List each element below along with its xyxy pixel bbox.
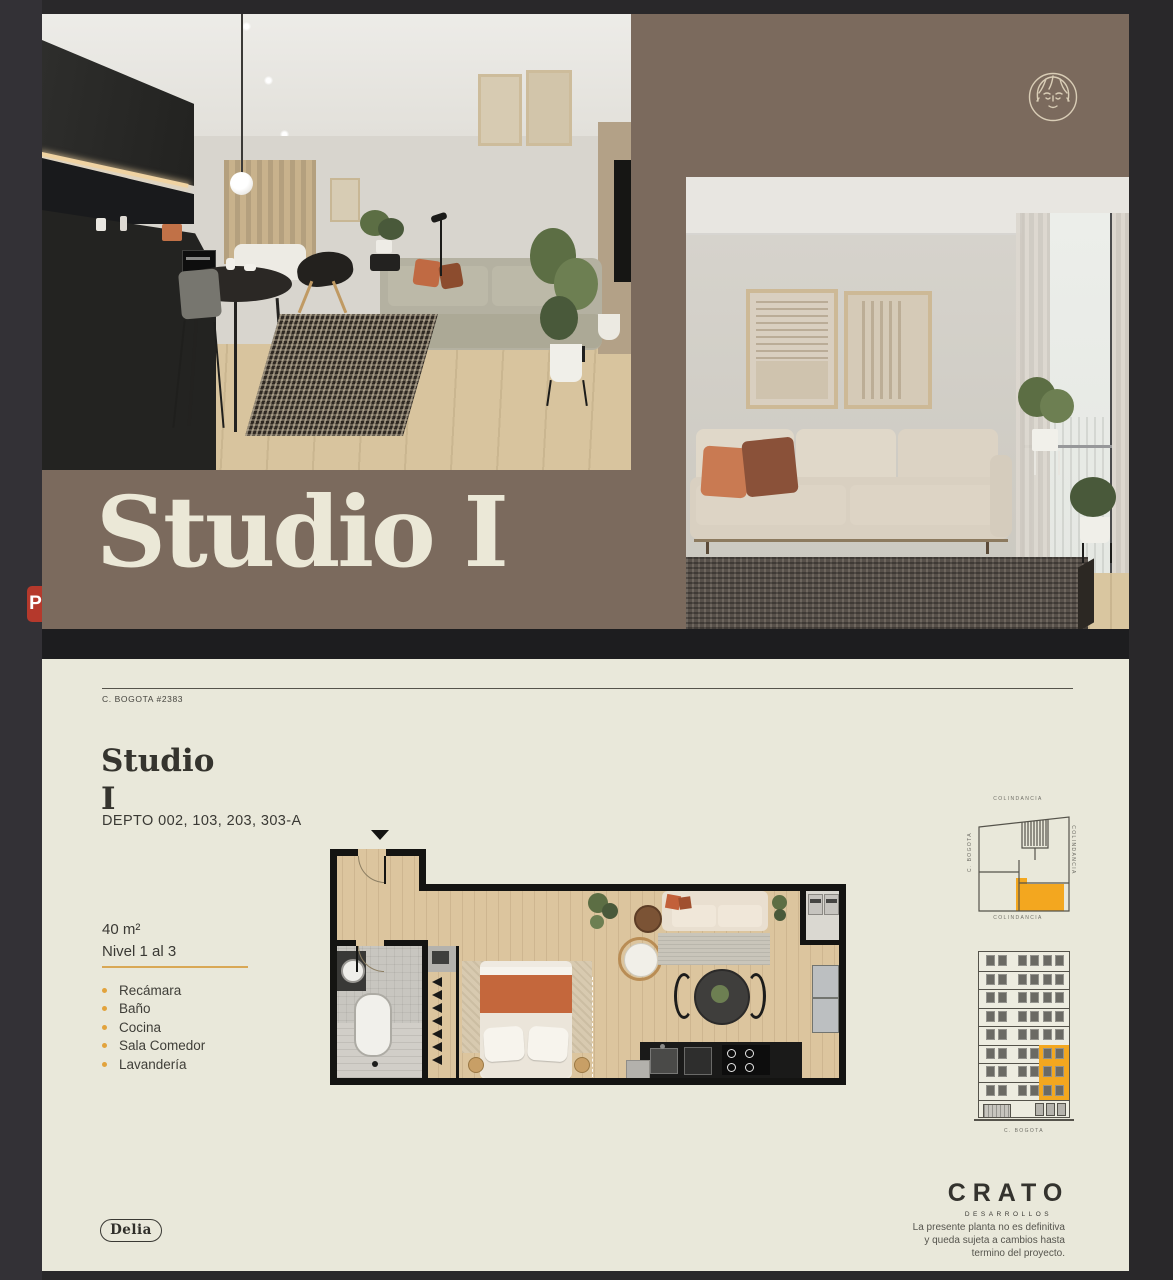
oven-handle	[186, 257, 210, 260]
counter-prop-box	[162, 224, 182, 241]
kitchen-sink-plan	[650, 1048, 678, 1074]
north-triangle-marker	[371, 830, 389, 840]
wall	[800, 940, 846, 945]
bath-door-leaf	[356, 946, 358, 972]
sofa-arm-right	[990, 455, 1012, 537]
olive-tree-foliage	[540, 296, 578, 340]
elevation-window	[1018, 1066, 1027, 1077]
elevation-window	[1043, 1048, 1052, 1059]
elevation-window	[1030, 1085, 1039, 1096]
wall-art-frame	[746, 289, 838, 409]
frame-art-lines	[756, 301, 828, 359]
elevation-window	[1018, 1029, 1027, 1040]
elevation-window	[1055, 992, 1064, 1003]
plan-plant	[590, 915, 604, 929]
sheer-curtain	[1112, 213, 1129, 617]
viewer-left-gutter	[0, 0, 42, 1280]
stove-burner	[745, 1063, 754, 1072]
plan-plant	[772, 895, 787, 910]
area-rug	[686, 557, 1088, 629]
elevation-window	[998, 992, 1007, 1003]
sofa-leg	[986, 542, 989, 554]
floor-lamp-pole	[440, 218, 442, 276]
feature-label: Recámara	[119, 983, 181, 998]
elevation-window	[998, 1066, 1007, 1077]
elevation-floor	[979, 971, 1069, 991]
entry-door-leaf	[384, 856, 386, 884]
bullet-dot	[102, 1043, 107, 1048]
level-label: Nivel 1 al 3	[102, 943, 176, 960]
feature-label: Baño	[119, 1001, 151, 1016]
dining-chair-plan	[674, 973, 694, 1019]
wall-art-frame	[526, 70, 572, 146]
closet-hanger-icon	[432, 977, 442, 987]
pendant-cord	[241, 14, 243, 174]
elevation-building	[978, 951, 1070, 1118]
header-rule	[102, 688, 1073, 689]
elevation-window	[1030, 992, 1039, 1003]
elevation-window	[1018, 974, 1027, 985]
elevation-window	[1043, 974, 1052, 985]
kitchen-faucet	[660, 1044, 665, 1049]
elevation-window	[986, 992, 995, 1003]
elevation-window	[1030, 1011, 1039, 1022]
counter-prop-candle	[120, 216, 127, 231]
nightstand	[574, 1057, 590, 1073]
sofa-pillow-orange	[412, 258, 441, 287]
elevation-window	[1043, 1029, 1052, 1040]
bed-pillow	[527, 1026, 569, 1063]
bathtub	[354, 993, 392, 1057]
table-leg	[234, 302, 237, 432]
feature-item: Sala Comedor	[102, 1037, 205, 1056]
armchair-seat	[624, 943, 658, 977]
siteplan-label-right: COLINDANCIA	[1070, 811, 1076, 889]
garage-door	[983, 1104, 1011, 1118]
wall-art-frame-small	[330, 178, 360, 222]
bullet-dot	[102, 1062, 107, 1067]
elevation-window	[1018, 992, 1027, 1003]
elevation-floor	[979, 1045, 1069, 1065]
elevation-window	[998, 974, 1007, 985]
elevation-window	[1018, 1011, 1027, 1022]
elevation-window	[1043, 992, 1052, 1003]
plant-foliage	[1040, 389, 1074, 423]
elevation-window	[1055, 1066, 1064, 1077]
elevation-window	[998, 955, 1007, 966]
elevation-window	[986, 1066, 995, 1077]
closet-hanger-icon	[432, 1003, 442, 1013]
plant-pot-white	[1032, 429, 1058, 451]
elevation-floor	[979, 952, 1069, 972]
elevation-window	[1030, 1048, 1039, 1059]
elevation-floor	[979, 1100, 1069, 1120]
bed-blanket-orange	[480, 975, 572, 1013]
elevation-window	[1055, 1011, 1064, 1022]
plant-pot-white	[1080, 517, 1110, 543]
wall	[800, 884, 806, 944]
ceiling-light	[264, 76, 273, 85]
building-elevation-diagram	[974, 949, 1074, 1135]
wall	[330, 849, 337, 1085]
tv-screen	[614, 160, 631, 282]
elevation-floor	[979, 989, 1069, 1009]
siteplan-label-top: COLINDANCIA	[980, 796, 1056, 802]
wall	[422, 940, 428, 1085]
counter-prop-cup	[96, 218, 106, 231]
ground-door	[1035, 1103, 1044, 1116]
dining-chair-back	[178, 268, 222, 319]
elevation-floor	[979, 1082, 1069, 1102]
elevation-window	[1018, 955, 1027, 966]
feature-label: Sala Comedor	[119, 1038, 205, 1053]
feature-item: Lavandería	[102, 1055, 205, 1074]
area-label: 40 m²	[102, 921, 140, 938]
elevation-window	[1055, 974, 1064, 985]
plan-plant	[602, 903, 618, 919]
dryer	[824, 894, 839, 915]
plant-wire-stand	[1082, 543, 1112, 563]
elevation-window	[998, 1029, 1007, 1040]
stove-burner	[727, 1049, 736, 1058]
wall	[839, 884, 846, 1085]
delia-badge: Delia	[100, 1219, 162, 1242]
floor-plan	[322, 827, 857, 1099]
wall	[330, 1078, 846, 1085]
sofa-seat-cushion	[850, 485, 998, 525]
plan-plant	[774, 909, 786, 921]
crato-wordmark: CRATO	[906, 1179, 1111, 1208]
elevation-window	[1030, 974, 1039, 985]
feature-list: Recámara Baño Cocina Sala Comedor Lavand…	[102, 981, 205, 1074]
plan-sofa-cushion	[718, 905, 762, 927]
elevation-window	[986, 1048, 995, 1059]
wall-art-frame	[844, 291, 932, 409]
closet-hangers	[430, 977, 454, 1077]
wall-art-frame	[478, 74, 522, 146]
dishwasher-plan	[684, 1047, 712, 1075]
closet-hanger-icon	[432, 990, 442, 1000]
nightstand	[468, 1057, 484, 1073]
hero-title: Studio I	[96, 484, 506, 581]
bullet-dot	[102, 1025, 107, 1030]
address-label: C. BOGOTA #2383	[102, 694, 183, 704]
side-table	[370, 254, 400, 271]
sheet-title-line2: I	[101, 781, 116, 817]
shower-drain	[372, 1061, 378, 1067]
plant-foliage	[378, 218, 404, 240]
plan-sofa-pillow	[678, 896, 692, 910]
bed-sheet-fold	[480, 967, 572, 975]
feature-item: Cocina	[102, 1018, 205, 1037]
ground-door	[1046, 1103, 1055, 1116]
olive-tree-pot	[550, 344, 582, 382]
pillow-rust	[741, 436, 799, 497]
ground-door	[1057, 1103, 1066, 1116]
dryer-slot	[826, 899, 837, 903]
wall	[419, 884, 846, 891]
elevation-window	[986, 1029, 995, 1040]
elevation-window	[986, 1011, 995, 1022]
elevation-floor	[979, 1008, 1069, 1028]
kitchen-counter-cabinets	[42, 210, 216, 470]
elevation-window	[998, 1085, 1007, 1096]
closet-hanger-icon	[432, 1016, 442, 1026]
table-prop	[226, 258, 235, 270]
ceiling-light	[242, 22, 251, 31]
elevation-window	[1055, 1029, 1064, 1040]
elevation-window	[1043, 955, 1052, 966]
elevation-window	[1055, 1048, 1064, 1059]
plan-living-rug	[658, 933, 770, 965]
frame-art-field	[756, 361, 828, 399]
closet-hanger-icon	[432, 1055, 442, 1065]
photo-living-kitchen	[42, 14, 631, 470]
refrigerator-plan	[812, 965, 839, 1033]
stove-burner	[727, 1063, 736, 1072]
elevation-window	[1018, 1048, 1027, 1059]
plant-foliage	[1070, 477, 1116, 517]
disclaimer-text: La presente planta no es definitiva y qu…	[860, 1221, 1065, 1260]
elevation-window	[986, 1085, 995, 1096]
feature-item: Recámara	[102, 981, 205, 1000]
siteplan-label-bottom: COLINDANCIA	[980, 915, 1056, 921]
bullet-dot	[102, 1006, 107, 1011]
refrigerator-split	[813, 997, 838, 999]
bath-sink	[341, 959, 365, 983]
rug-fringe	[1078, 558, 1094, 629]
feature-label: Cocina	[119, 1020, 161, 1035]
delia-face-logo	[1026, 70, 1080, 124]
elevation-floor	[979, 1063, 1069, 1083]
elevation-window	[1018, 1085, 1027, 1096]
elevation-window	[1055, 955, 1064, 966]
plan-sheet: C. BOGOTA #2383 Studio I DEPTO 002, 103,…	[42, 659, 1129, 1271]
elevation-floor	[979, 1026, 1069, 1046]
page-gap	[42, 629, 1129, 660]
depto-label: DEPTO 002, 103, 203, 303-A	[102, 813, 302, 829]
crato-logo: CRATO DESARROLLOS	[906, 1179, 1111, 1218]
elevation-window	[1043, 1085, 1052, 1096]
elevation-window	[998, 1048, 1007, 1059]
brochure-page: P	[0, 0, 1173, 1280]
table-plant	[711, 985, 729, 1003]
hero-panel: Studio I	[42, 14, 1129, 629]
elevation-window	[1030, 955, 1039, 966]
washer	[808, 894, 823, 915]
sofa-leg	[706, 542, 709, 554]
elevation-window	[1030, 1029, 1039, 1040]
wall	[330, 940, 356, 946]
elevation-label: C. BOGOTA	[974, 1128, 1074, 1134]
elevation-window	[1055, 1085, 1064, 1096]
elevation-window	[1043, 1011, 1052, 1022]
feature-label: Lavandería	[119, 1057, 187, 1072]
elevation-window	[1030, 1066, 1039, 1077]
feature-item: Baño	[102, 1000, 205, 1019]
accent-divider	[102, 966, 248, 968]
plan-dashed-line	[592, 977, 593, 1077]
closet-wall-thin	[456, 946, 459, 1085]
sofa-wood-base	[694, 539, 1008, 542]
closet-cabinet-inner	[432, 951, 449, 964]
siteplan-label-left: C. BOGOTA	[967, 816, 973, 888]
hanging-pot	[598, 314, 620, 340]
elevation-window	[986, 974, 995, 985]
bullet-dot	[102, 988, 107, 993]
elevation-window	[986, 955, 995, 966]
pendant-globe-lamp	[230, 172, 253, 195]
sofa-leg	[582, 346, 585, 362]
dining-chair-plan	[746, 973, 766, 1019]
frame-art-lines	[862, 301, 902, 399]
closet-hanger-icon	[432, 1029, 442, 1039]
coffee-table	[634, 905, 662, 933]
photo-sofa-wall	[686, 177, 1129, 629]
table-prop	[244, 264, 256, 271]
stove-burner	[745, 1049, 754, 1058]
side-table-pot	[376, 240, 392, 253]
bed-pillow	[483, 1026, 525, 1063]
plant-stand-white	[1034, 451, 1060, 475]
washer-slot	[810, 899, 821, 903]
sheet-title-line1: Studio	[101, 743, 214, 779]
elevation-groundline	[974, 1119, 1074, 1121]
closet-hanger-icon	[432, 1042, 442, 1052]
elevation-window	[998, 1011, 1007, 1022]
elevation-window	[1043, 1066, 1052, 1077]
crato-subtitle: DESARROLLOS	[906, 1211, 1111, 1218]
